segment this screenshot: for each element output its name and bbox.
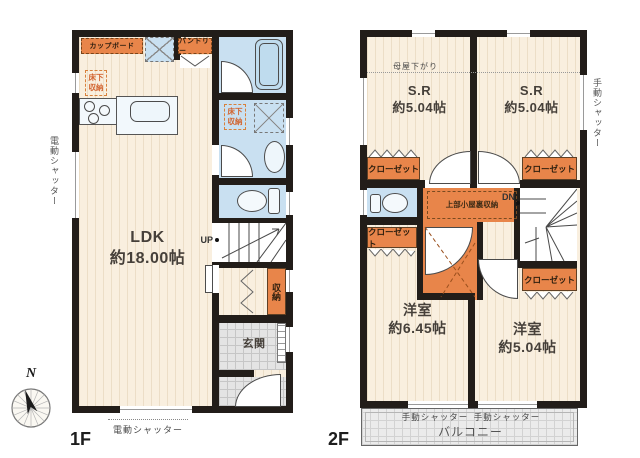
sr-left-label: S.R 約5.04帖 — [382, 83, 457, 117]
cupboard-text: カップボード — [90, 41, 135, 51]
sr-name: S.R — [494, 83, 569, 100]
up-dot — [215, 238, 219, 242]
electric-shutter-side-caption: 電動シャッター — [48, 136, 61, 220]
window — [286, 270, 293, 292]
wall — [514, 261, 577, 268]
pantry-label: パントリー — [178, 38, 212, 54]
eaves-note: 母屋下がり — [393, 61, 453, 72]
closet-door-icon — [368, 149, 419, 157]
doorway — [212, 265, 219, 293]
stove-burner — [88, 113, 99, 124]
toilet-bowl — [237, 190, 267, 212]
door-leaf — [205, 265, 213, 293]
toilet-tank — [268, 188, 280, 214]
pantry-door-icon — [180, 55, 210, 68]
floor-storage-label: 床下収納 — [85, 70, 107, 96]
room-right-label: 洋室 約5.04帖 — [490, 320, 565, 356]
window — [408, 401, 468, 408]
window — [507, 30, 530, 37]
sr-right-door — [478, 151, 520, 184]
wall — [470, 37, 477, 180]
room-left-label: 洋室 約6.45帖 — [380, 301, 455, 337]
hall-dashes — [423, 225, 477, 299]
closet-text: クローゼット — [524, 274, 575, 286]
manual-shutter-caption: 手動シャッター — [400, 411, 470, 423]
floor1-plan: カップボード パントリー 床下収納 床下収納 U — [72, 30, 293, 413]
dn-dot — [516, 201, 520, 205]
closet: クローゼット — [522, 268, 577, 291]
manual-shutter-caption: 手動シャッター — [472, 411, 542, 423]
window — [478, 401, 537, 408]
compass-north-label: N — [6, 366, 56, 382]
cupboard-label: カップボード — [81, 38, 143, 54]
bifold-door-icon — [239, 269, 255, 314]
room-name: 洋室 — [490, 320, 565, 338]
window — [412, 30, 435, 37]
closet-door-icon — [368, 249, 416, 257]
staircase-icon — [520, 185, 577, 261]
floor-storage-text: 床下収納 — [225, 107, 245, 128]
wall — [367, 217, 423, 225]
washer-space — [254, 103, 284, 133]
pantry-text: パントリー — [179, 36, 211, 56]
shoe-cabinet — [277, 323, 286, 363]
closet-text: クローゼット — [368, 226, 416, 250]
kitchen-sink — [130, 101, 170, 122]
stove-burner — [99, 105, 110, 116]
wall — [219, 370, 254, 377]
closet: クローゼット — [522, 157, 577, 180]
bathtub-inner — [259, 43, 279, 86]
sr-right-label: S.R 約5.04帖 — [494, 83, 569, 117]
closet-door-icon — [524, 292, 575, 300]
dn-label: DN — [489, 192, 515, 202]
up-label: UP — [179, 235, 213, 245]
wall — [212, 178, 286, 185]
hall-storage: 収納 — [267, 268, 286, 315]
hall-storage-text: 収納 — [270, 283, 283, 301]
stove-burner — [84, 101, 95, 112]
sr-size: 約5.04帖 — [494, 100, 569, 117]
window — [360, 78, 367, 145]
toilet-bowl — [382, 193, 408, 213]
floor2-plan: 母屋下がり S.R 約5.04帖 S.R 約5.04帖 クローゼット クローゼッ… — [360, 30, 587, 408]
closet: クローゼット — [367, 227, 417, 248]
window — [580, 75, 587, 130]
window — [286, 327, 293, 352]
wall — [212, 315, 286, 323]
compass: N — [6, 366, 56, 452]
window — [286, 118, 293, 145]
room-name: 洋室 — [380, 301, 455, 319]
side-door — [72, 73, 79, 93]
window — [360, 190, 367, 215]
closet-text: クローゼット — [368, 163, 419, 175]
floorplan-canvas: カップボード パントリー 床下収納 床下収納 U — [0, 0, 640, 458]
doorway — [212, 145, 219, 175]
closet-text: クローゼット — [524, 163, 575, 175]
window — [120, 406, 192, 413]
sr-size: 約5.04帖 — [382, 100, 457, 117]
balcony-label: バルコニー — [433, 423, 508, 440]
manual-shutter-side-caption: 手動シャッター — [591, 78, 604, 162]
room-size: 約6.45帖 — [380, 319, 455, 337]
window — [286, 192, 293, 215]
wall — [212, 93, 286, 100]
staircase-icon — [219, 223, 286, 262]
washbasin — [264, 141, 285, 173]
shutter-dotline — [108, 419, 188, 420]
compass-rose-icon — [9, 386, 53, 430]
bathtub — [255, 39, 283, 90]
sr-name: S.R — [382, 83, 457, 100]
entrance-label: 玄関 — [229, 337, 279, 351]
electric-shutter-caption: 電動シャッター — [93, 423, 203, 436]
refrigerator-space — [145, 37, 174, 62]
floor-storage-label: 床下収納 — [224, 104, 246, 130]
floor2-label: 2F — [328, 429, 349, 450]
window — [72, 152, 79, 218]
closet: クローゼット — [367, 157, 420, 180]
floor-storage-text: 床下収納 — [86, 73, 106, 94]
sr-left-door — [429, 151, 471, 184]
wall — [468, 293, 475, 401]
stair-opening — [212, 223, 219, 262]
room-size: 約5.04帖 — [490, 338, 565, 356]
floor1-label: 1F — [70, 429, 91, 450]
ldk-size: 約18.00帖 — [100, 249, 195, 270]
closet-door-icon — [524, 149, 575, 157]
room-right-door — [478, 259, 518, 299]
toilet-tank — [370, 194, 381, 213]
eaves-dotline — [367, 72, 580, 73]
